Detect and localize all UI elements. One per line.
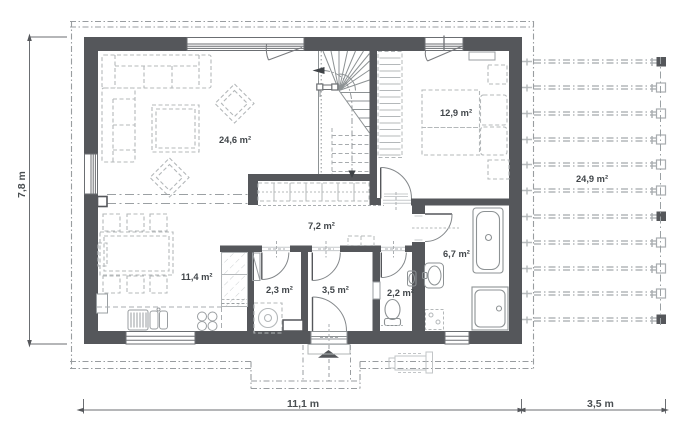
svg-text:12,9 m²: 12,9 m² bbox=[440, 108, 472, 118]
svg-text:11,4 m²: 11,4 m² bbox=[181, 272, 213, 282]
svg-text:6,7 m²: 6,7 m² bbox=[443, 249, 470, 259]
svg-text:2,2 m²: 2,2 m² bbox=[387, 288, 414, 298]
svg-text:3,5 m: 3,5 m bbox=[587, 398, 614, 410]
svg-text:7,2 m²: 7,2 m² bbox=[308, 221, 335, 231]
svg-text:24,9 m²: 24,9 m² bbox=[576, 174, 608, 184]
svg-text:24,6 m²: 24,6 m² bbox=[219, 135, 251, 145]
svg-text:2,3 m²: 2,3 m² bbox=[266, 285, 293, 295]
svg-text:11,1 m: 11,1 m bbox=[287, 398, 319, 410]
svg-text:7,8 m: 7,8 m bbox=[16, 171, 28, 198]
svg-text:3,5 m²: 3,5 m² bbox=[322, 285, 349, 295]
